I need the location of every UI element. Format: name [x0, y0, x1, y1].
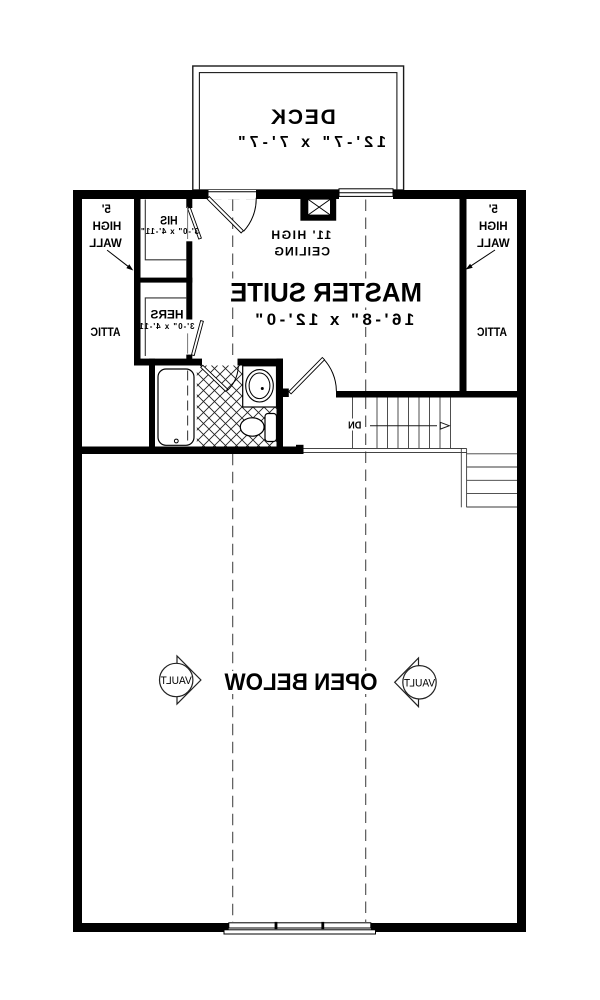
- svg-text:HIGH: HIGH: [479, 221, 508, 233]
- svg-text:HIS: HIS: [160, 215, 178, 227]
- svg-text:WALL: WALL: [477, 238, 510, 250]
- svg-text:3'-0" x 4'-11": 3'-0" x 4'-11": [141, 227, 199, 236]
- svg-text:VAULT: VAULT: [404, 677, 436, 689]
- svg-text:MASTER SUITE: MASTER SUITE: [230, 277, 422, 307]
- svg-text:CEILING: CEILING: [274, 245, 330, 259]
- svg-text:DECK: DECK: [271, 106, 336, 129]
- svg-text:3'-0" x 4'-11": 3'-0" x 4'-11": [134, 322, 194, 331]
- svg-text:ATTIC: ATTIC: [477, 327, 507, 339]
- svg-text:VAULT: VAULT: [160, 675, 192, 687]
- svg-text:5': 5': [101, 204, 110, 216]
- svg-text:OPEN BELOW: OPEN BELOW: [225, 669, 378, 696]
- svg-text:DN: DN: [348, 420, 361, 431]
- svg-text:11' HIGH: 11' HIGH: [271, 228, 331, 242]
- svg-text:5': 5': [488, 204, 497, 216]
- svg-text:HIGH: HIGH: [93, 221, 122, 233]
- svg-text:WALL: WALL: [89, 238, 122, 250]
- svg-text:HERS: HERS: [150, 310, 183, 322]
- svg-text:ATTIC: ATTIC: [91, 327, 121, 339]
